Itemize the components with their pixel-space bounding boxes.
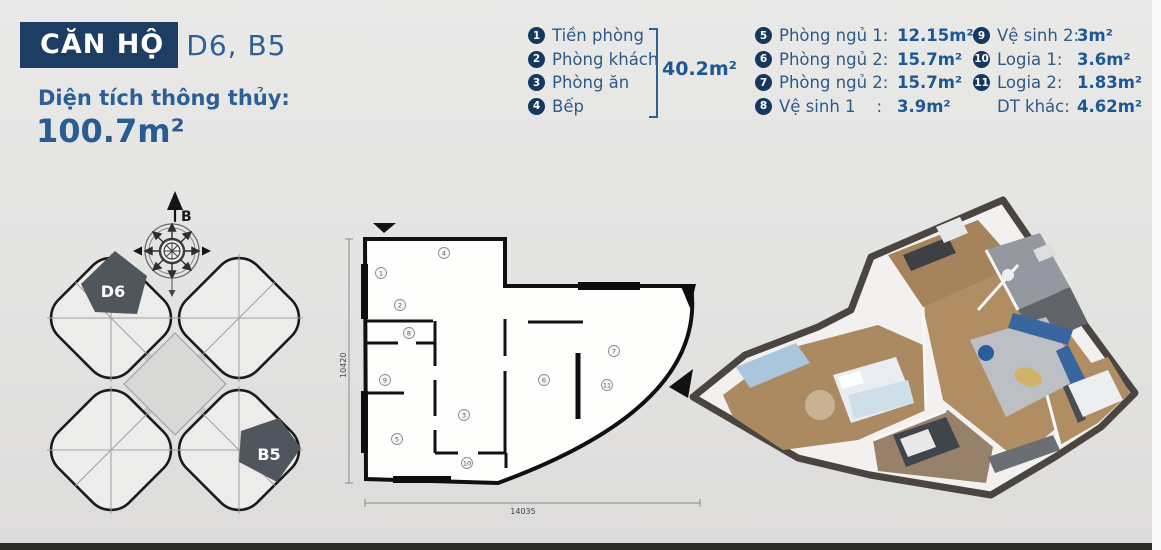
- legend-label: Vệ sinh 2:: [997, 26, 1077, 45]
- entry-arrow-icon: [373, 223, 396, 233]
- legend-number-badge: 10: [973, 51, 990, 68]
- room-number: 11: [603, 381, 611, 389]
- net-area-value: 100.7m²: [36, 112, 185, 150]
- legend-label: Phòng ngủ 2:: [779, 73, 897, 92]
- room-number: 7: [612, 347, 616, 355]
- legend-group-2: 5 Phòng ngủ 1: 12.15m² 6 Phòng ngủ 2: 15…: [755, 24, 974, 118]
- legend-group-1: 1 Tiền phòng 2 Phòng khách 3 Phòng ăn 4 …: [528, 24, 728, 120]
- legend-group-3: 9 Vệ sinh 2: 3m² 10 Logia 1: 3.6m² 11 Lo…: [973, 24, 1142, 118]
- room-number: 3: [462, 411, 466, 419]
- room-number: 6: [542, 376, 546, 384]
- net-area-label: Diện tích thông thủy:: [38, 86, 290, 110]
- legend-item-5: 5 Phòng ngủ 1: 12.15m²: [755, 24, 974, 48]
- legend-number-badge: 8: [755, 98, 772, 115]
- legend-label: Bếp: [552, 97, 584, 116]
- floorplan-sheet: CĂN HỘ D6, B5 Diện tích thông thủy: 100.…: [0, 0, 1161, 550]
- legend-number-badge: 9: [973, 27, 990, 44]
- room-number: 9: [383, 376, 387, 384]
- legend-number-badge: 7: [755, 74, 772, 91]
- legend-item-11: 11 Logia 2: 1.83m²: [973, 71, 1142, 95]
- legend-item-1: 1 Tiền phòng: [528, 24, 728, 48]
- legend-item-8: 8 Vệ sinh 1 : 3.9m²: [755, 95, 974, 119]
- legend-item-4: 4 Bếp: [528, 95, 728, 119]
- legend-label: Phòng ngủ 1:: [779, 26, 897, 45]
- bottom-edge-bar: [0, 543, 1161, 550]
- compass-north-label: B: [181, 209, 192, 225]
- legend-label: Phòng ngủ 2:: [779, 50, 897, 69]
- right-edge-strip: [1152, 0, 1161, 550]
- legend-label: DT khác:: [997, 97, 1077, 116]
- legend-number-badge: 6: [755, 51, 772, 68]
- legend-value: 3.9m²: [897, 97, 951, 116]
- legend-value: 1.83m²: [1077, 73, 1142, 92]
- legend-number-badge: 11: [973, 74, 990, 91]
- legend-item-6: 6 Phòng ngủ 2: 15.7m²: [755, 48, 974, 72]
- floor-plan-2d: 1 2 3 4 5 6 7 8 9 10 11 10420 14035: [338, 206, 712, 528]
- room-number: 5: [395, 435, 399, 443]
- room-number: 8: [407, 329, 411, 337]
- outer-walls: [365, 239, 692, 483]
- legend-item-7: 7 Phòng ngủ 2: 15.7m²: [755, 71, 974, 95]
- legend-label: Vệ sinh 1 :: [779, 97, 897, 116]
- legend-item-9: 9 Vệ sinh 2: 3m²: [973, 24, 1142, 48]
- legend-value: 3m²: [1077, 26, 1113, 45]
- room-number: 4: [442, 249, 446, 257]
- building-key-plan: B: [35, 188, 317, 523]
- legend-item-10: 10 Logia 1: 3.6m²: [973, 48, 1142, 72]
- legend-label: Tiền phòng: [552, 26, 644, 45]
- legend-number-badge: 5: [755, 27, 772, 44]
- legend-value: 12.15m²: [897, 26, 974, 45]
- unit-d6-label: D6: [101, 282, 125, 301]
- page-title: CĂN HỘ D6, B5: [20, 22, 286, 68]
- legend-label: Logia 2:: [997, 73, 1077, 92]
- legend-label: Logia 1:: [997, 50, 1077, 69]
- legend-value: 3.6m²: [1077, 50, 1131, 69]
- legend-number-badge: 2: [528, 51, 545, 68]
- legend-number-badge: 4: [528, 98, 545, 115]
- floor-plan-3d-render: [688, 195, 1158, 525]
- legend-number-badge: 3: [528, 74, 545, 91]
- dimension-width-label: 14035: [510, 507, 535, 516]
- legend-label: Phòng ăn: [552, 73, 629, 92]
- room-number: 10: [463, 459, 471, 467]
- group-bracket: [649, 28, 658, 118]
- apartment-title: CĂN HỘ: [20, 22, 178, 68]
- legend-value: 15.7m²: [897, 73, 962, 92]
- legend-value: 15.7m²: [897, 50, 962, 69]
- room-number: 2: [398, 301, 402, 309]
- unit-b5-label: B5: [257, 445, 280, 464]
- room-number: 1: [379, 269, 383, 277]
- dimension-height-label: 10420: [339, 353, 348, 378]
- legend-label: Phòng khách: [552, 50, 658, 69]
- legend-item-other-area: DT khác: 4.62m²: [973, 95, 1142, 119]
- dimension-width: [365, 499, 700, 507]
- legend-number-badge: 1: [528, 27, 545, 44]
- legend-value: 4.62m²: [1077, 97, 1142, 116]
- apartment-units: D6, B5: [186, 29, 286, 62]
- group-area-value: 40.2m²: [662, 58, 737, 80]
